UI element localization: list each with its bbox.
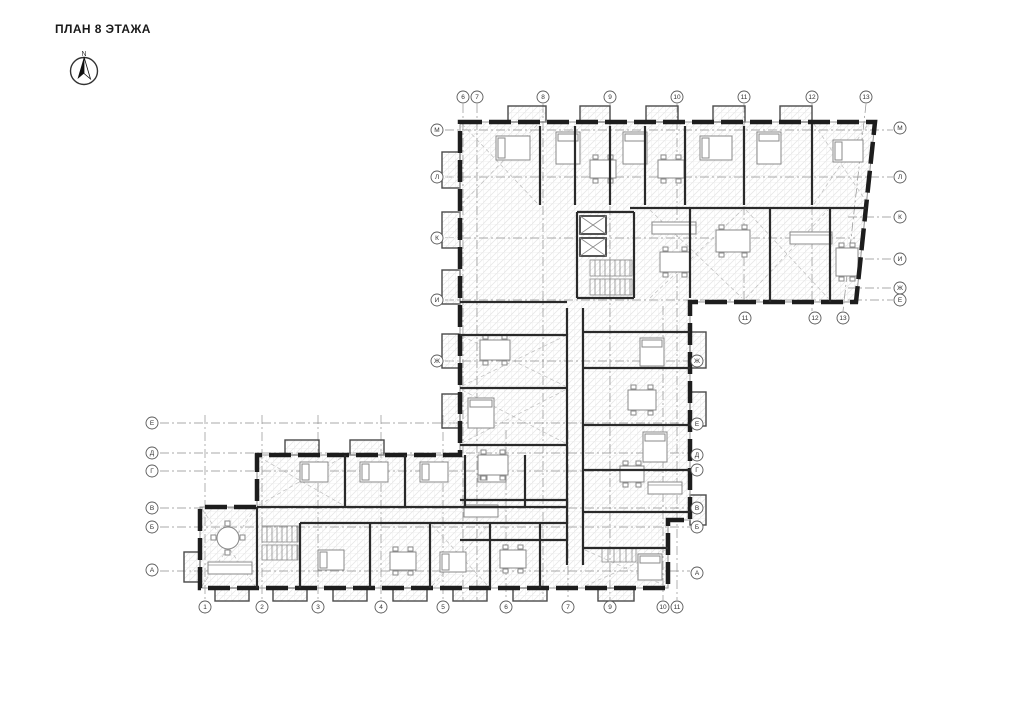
axis-bubble: 13 — [860, 91, 872, 103]
axis-bubble-label: Г — [695, 467, 699, 474]
axis-bubble-label: 13 — [839, 315, 847, 322]
axis-bubble: 12 — [806, 91, 818, 103]
axis-bubble-label: 7 — [475, 94, 479, 101]
axis-bubble: 7 — [562, 601, 574, 613]
axis-bubble-label: 1 — [203, 604, 207, 611]
axis-bubble: Ж — [894, 282, 906, 294]
axis-bubble: К — [431, 232, 443, 244]
compass-needle-dark — [78, 57, 85, 79]
bed-symbol — [360, 462, 388, 482]
axis-bubble: 4 — [375, 601, 387, 613]
axis-bubble: И — [894, 253, 906, 265]
axis-bubble-label: В — [695, 505, 699, 512]
axis-bubble-label: Г — [150, 468, 154, 475]
axis-bubble: Д — [146, 447, 158, 459]
axis-bubble-label: 9 — [608, 604, 612, 611]
axis-bubble: И — [431, 294, 443, 306]
axis-bubble-label: 3 — [316, 604, 320, 611]
axis-bubble: Е — [691, 418, 703, 430]
north-compass: N — [71, 51, 98, 85]
axis-bubble: 12 — [809, 312, 821, 324]
axis-bubble-label: В — [150, 505, 154, 512]
bed-symbol — [623, 132, 647, 164]
table-symbol — [478, 450, 508, 480]
axis-bubble-label: А — [150, 567, 155, 574]
axis-bubble-label: Е — [695, 421, 700, 428]
axis-bubble: Ж — [431, 355, 443, 367]
axis-bubble-label: И — [435, 297, 440, 304]
axis-bubble-label: 10 — [659, 604, 667, 611]
balcony — [442, 212, 460, 248]
axis-bubble: 3 — [312, 601, 324, 613]
axis-bubble-label: Б — [695, 524, 699, 531]
axis-bubble-label: 10 — [673, 94, 681, 101]
bed-symbol — [420, 462, 448, 482]
bed-symbol — [833, 140, 863, 162]
axis-bubble: А — [146, 564, 158, 576]
table-symbol — [480, 335, 510, 365]
bed-symbol — [496, 136, 530, 160]
axis-bubble: 6 — [500, 601, 512, 613]
axis-bubble: 8 — [537, 91, 549, 103]
axis-bubble-label: 11 — [674, 604, 681, 611]
axis-bubble: Б — [691, 521, 703, 533]
axis-bubble: 13 — [837, 312, 849, 324]
sofa-symbol — [790, 232, 832, 244]
bed-symbol — [318, 550, 344, 570]
axis-bubble: 6 — [457, 91, 469, 103]
axis-bubble-label: Л — [898, 174, 902, 181]
bed-symbol — [556, 132, 580, 164]
axis-bubble: 11 — [671, 601, 683, 613]
axis-bubble: В — [691, 502, 703, 514]
table-symbol — [628, 385, 656, 415]
sofa-symbol — [648, 482, 682, 494]
axis-bubble-label: 7 — [566, 604, 570, 611]
bed-symbol — [643, 432, 667, 462]
table-symbol — [716, 225, 750, 257]
axis-bubble-label: 13 — [862, 94, 870, 101]
compass-needle-light — [84, 57, 91, 79]
axis-bubble: М — [431, 124, 443, 136]
axis-bubble-label: А — [695, 570, 700, 577]
elevator-symbol — [580, 238, 606, 256]
bed-symbol — [700, 136, 732, 160]
axis-bubble-label: М — [434, 127, 439, 134]
axis-bubble: 10 — [657, 601, 669, 613]
axis-bubble-label: 8 — [541, 94, 545, 101]
elevator-symbol — [580, 216, 606, 234]
axis-bubble-label: М — [897, 125, 902, 132]
axis-bubble-label: Д — [150, 450, 155, 457]
axis-bubble: Е — [146, 417, 158, 429]
axis-bubble-label: И — [898, 256, 903, 263]
bed-symbol — [440, 552, 466, 572]
axis-bubble-label: 5 — [441, 604, 445, 611]
bed-symbol — [300, 462, 328, 482]
axis-bubble-label: Ж — [897, 285, 903, 292]
balcony — [713, 106, 745, 122]
axis-bubble: В — [146, 502, 158, 514]
axis-bubble: 11 — [739, 312, 751, 324]
axis-bubble: Е — [894, 294, 906, 306]
axis-bubble-label: Ж — [694, 358, 700, 365]
axis-bubble-label: Е — [150, 420, 155, 427]
axis-bubble: Л — [894, 171, 906, 183]
axis-bubble-label: 6 — [461, 94, 465, 101]
axis-bubble-label: 12 — [808, 94, 816, 101]
axis-bubble-label: 11 — [741, 94, 748, 101]
axis-bubble: Ж — [691, 355, 703, 367]
balcony — [580, 106, 610, 122]
axis-bubble-label: К — [898, 214, 902, 221]
axis-bubble: 9 — [604, 601, 616, 613]
balcony — [442, 394, 460, 428]
table-symbol — [836, 243, 858, 281]
floor-plan-drawing: N 678910111213111213123456791011МЛКИЖМЛК… — [0, 0, 1024, 724]
balcony — [442, 270, 460, 304]
axis-bubble: 5 — [437, 601, 449, 613]
axis-bubble-label: Л — [435, 174, 439, 181]
axis-bubble-label: К — [435, 235, 439, 242]
axis-bubble: Д — [691, 449, 703, 461]
axis-bubble: Г — [691, 464, 703, 476]
axis-bubble: А — [691, 567, 703, 579]
axis-bubble: 2 — [256, 601, 268, 613]
axis-bubble-label: Ж — [434, 358, 440, 365]
axis-bubble-label: 11 — [742, 315, 749, 322]
axis-bubble-label: 4 — [379, 604, 383, 611]
axis-bubble: К — [894, 211, 906, 223]
balcony — [780, 106, 812, 122]
axis-bubble: 10 — [671, 91, 683, 103]
balcony — [508, 106, 546, 122]
floor-plan-page: ПЛАН 8 ЭТАЖА N 6789101112131112131234567… — [0, 0, 1024, 724]
axis-bubble-label: Д — [695, 452, 700, 459]
bed-symbol — [640, 338, 664, 366]
bed-symbol — [468, 398, 494, 428]
axis-bubble: М — [894, 122, 906, 134]
axis-bubble-label: 12 — [811, 315, 819, 322]
axis-bubble: 1 — [199, 601, 211, 613]
axis-bubble-label: 6 — [504, 604, 508, 611]
bed-symbol — [638, 554, 662, 580]
building-footprint — [200, 122, 875, 588]
table-symbol — [660, 247, 690, 277]
balcony — [646, 106, 678, 122]
axis-bubble-label: 2 — [260, 604, 264, 611]
axis-bubble-label: 9 — [608, 94, 612, 101]
axis-bubble: Л — [431, 171, 443, 183]
axis-bubble: Б — [146, 521, 158, 533]
bed-symbol — [757, 132, 781, 164]
axis-bubble-label: Б — [150, 524, 154, 531]
axis-bubble: 9 — [604, 91, 616, 103]
balcony — [442, 152, 460, 188]
axis-bubble: 7 — [471, 91, 483, 103]
balcony — [442, 334, 460, 368]
sofa-symbol — [208, 562, 252, 574]
axis-bubble-label: Е — [898, 297, 903, 304]
axis-bubble: 11 — [738, 91, 750, 103]
balcony — [184, 552, 200, 582]
axis-bubble: Г — [146, 465, 158, 477]
